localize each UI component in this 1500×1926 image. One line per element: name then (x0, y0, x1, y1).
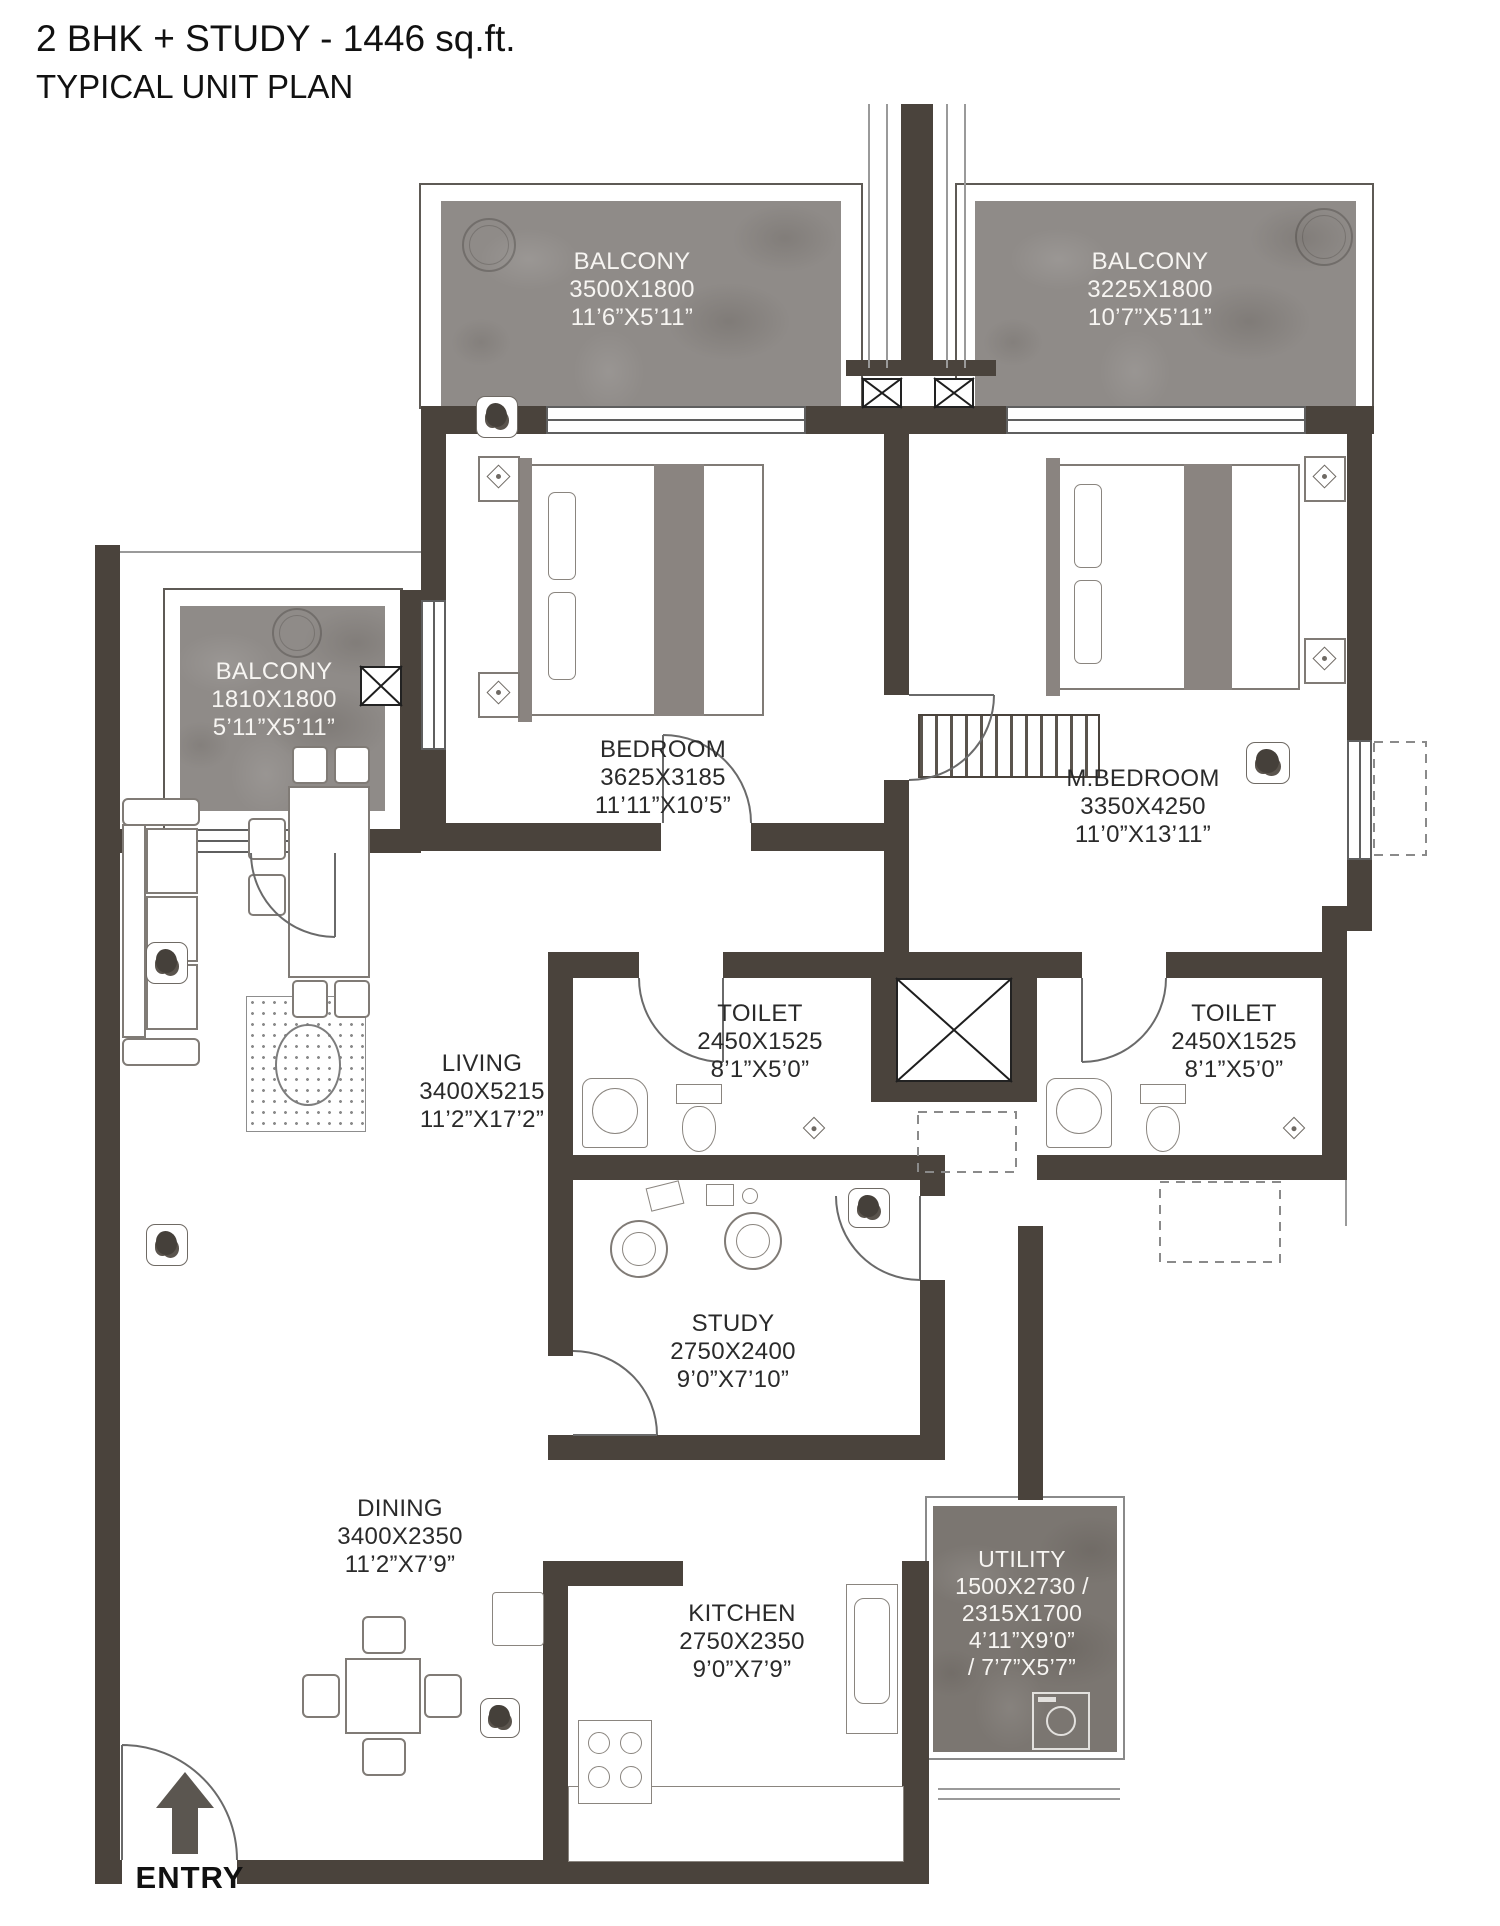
bed-runner (1184, 464, 1232, 690)
room-dims-ft: 10’7”X5’11” (1000, 304, 1300, 332)
plan-subtitle: TYPICAL UNIT PLAN (36, 68, 353, 106)
room-name: DINING (250, 1495, 550, 1523)
wall (901, 104, 933, 366)
label-bedroom: BEDROOM 3625X3185 11’11”X10’5” (513, 736, 813, 820)
room-dims-mm: 3350X4250 (993, 793, 1293, 821)
wall (1037, 1155, 1347, 1180)
wall (920, 1180, 945, 1196)
plan-title: 2 BHK + STUDY - 1446 sq.ft. (36, 18, 516, 60)
window (1006, 406, 1306, 434)
burner (620, 1732, 642, 1754)
entry-arrow-shaft (172, 1806, 198, 1854)
room-dims-ft: 11’11”X10’5” (513, 792, 813, 820)
sofa-cushion (146, 828, 198, 894)
wc-tank (1140, 1084, 1186, 1104)
beam-line (120, 551, 421, 553)
chair (334, 746, 370, 784)
plant-icon (848, 1188, 890, 1228)
study-chair-inner (622, 1232, 656, 1266)
chair (424, 1674, 462, 1718)
room-dims-mm: 1810X1800 (124, 686, 424, 714)
duct-box (862, 378, 902, 408)
planter-icon (1295, 208, 1353, 266)
bed-headboard (1046, 458, 1060, 696)
room-name: M.BEDROOM (993, 765, 1293, 793)
room-dims-ft: 11’2”X7’9” (250, 1551, 550, 1579)
wc-tank (676, 1084, 722, 1104)
window (421, 600, 446, 750)
room-name: BALCONY (124, 658, 424, 686)
room-dims-mm: 3225X1800 (1000, 276, 1300, 304)
chair (292, 980, 328, 1018)
wall (871, 1082, 1037, 1102)
room-dims-ft: 9’0”X7’10” (583, 1366, 883, 1394)
burner (588, 1766, 610, 1788)
plant-icon (146, 942, 188, 984)
wall (896, 1155, 945, 1180)
room-dims-mm: 3500X1800 (482, 276, 782, 304)
room-dims-ft: 11’6”X5’11” (482, 304, 782, 332)
dining-table-6 (288, 786, 370, 978)
shaft-box (896, 978, 1012, 1082)
wall (548, 1435, 945, 1460)
room-name: BEDROOM (513, 736, 813, 764)
sofa-back (122, 824, 146, 1038)
wall (1018, 1226, 1043, 1500)
sofa-armrest (122, 798, 200, 826)
wall (543, 1561, 568, 1884)
bed-headboard (518, 458, 532, 722)
pillow (1074, 484, 1102, 568)
desk-item (646, 1180, 685, 1212)
wall (421, 434, 446, 600)
pillow (548, 592, 576, 680)
label-dining: DINING 3400X2350 11’2”X7’9” (250, 1495, 550, 1579)
pillow (548, 492, 576, 580)
wall (1322, 906, 1372, 931)
label-kitchen: KITCHEN 2750X2350 9’0”X7’9” (592, 1600, 892, 1684)
wall (1347, 860, 1372, 906)
label-balcony-left: BALCONY 1810X1800 5’11”X5’11” (124, 658, 424, 742)
room-dims-ft: 4’11”X9’0” (872, 1627, 1172, 1654)
room-dims-ft: 9’0”X7’9” (592, 1656, 892, 1684)
washing-machine-panel (1038, 1697, 1056, 1702)
room-dims-mm: 2750X2400 (583, 1338, 883, 1366)
chair (362, 1738, 406, 1776)
planter-icon (272, 608, 322, 658)
room-name: UTILITY (872, 1546, 1172, 1573)
room-dims-ft: 8’1”X5’0” (1084, 1056, 1384, 1084)
wall (723, 952, 1082, 978)
plant-icon (480, 1698, 520, 1738)
shaft-line (868, 104, 870, 368)
chair (334, 980, 370, 1018)
cabinet (492, 1592, 544, 1646)
room-dims-mm: 1500X2730 / (872, 1573, 1172, 1600)
edge-line (1345, 1180, 1347, 1226)
wall (1347, 406, 1372, 740)
stove (578, 1720, 652, 1804)
wall (1166, 952, 1347, 978)
room-dims-mm: 3400X5215 (332, 1078, 632, 1106)
rug-oval (275, 1024, 340, 1106)
shaft-line (964, 104, 966, 368)
room-dims-mm: 3625X3185 (513, 764, 813, 792)
chair (248, 818, 286, 860)
study-chair-inner (736, 1224, 770, 1258)
room-dims-ft: 5’11”X5’11” (124, 714, 424, 742)
chair (292, 746, 328, 784)
entry-label: ENTRY (110, 1860, 270, 1896)
room-name: LIVING (332, 1050, 632, 1078)
room-dims-ft: 8’1”X5’0” (610, 1056, 910, 1084)
wall (548, 1155, 896, 1180)
label-balcony-top-left: BALCONY 3500X1800 11’6”X5’11” (482, 248, 782, 332)
label-study: STUDY 2750X2400 9’0”X7’10” (583, 1310, 883, 1394)
entry-arrow-icon (156, 1772, 214, 1808)
room-dims-mm: 2450X1525 (610, 1028, 910, 1056)
washing-machine-door (1046, 1706, 1076, 1736)
sofa-armrest (122, 1038, 200, 1066)
label-balcony-top-right: BALCONY 3225X1800 10’7”X5’11” (1000, 248, 1300, 332)
wc-bowl (682, 1106, 716, 1152)
wall (237, 1860, 929, 1884)
wall (421, 823, 661, 851)
desk-item (706, 1184, 734, 1206)
wall (548, 952, 639, 978)
threshold-line (938, 1798, 1120, 1800)
room-name: BALCONY (1000, 248, 1300, 276)
window (546, 406, 806, 434)
burner (588, 1732, 610, 1754)
threshold-line (938, 1788, 1120, 1790)
wall (1012, 978, 1037, 1082)
label-living: LIVING 3400X5215 11’2”X17’2” (332, 1050, 632, 1134)
chair (248, 874, 286, 916)
label-master-bedroom: M.BEDROOM 3350X4250 11’0”X13’11” (993, 765, 1293, 849)
bed-runner (654, 464, 704, 716)
dining-table-4 (345, 1658, 421, 1734)
room-dims-ft: / 7’7”X5’7” (872, 1654, 1172, 1681)
wall (751, 823, 884, 851)
wall (920, 1280, 945, 1460)
room-name: TOILET (610, 1000, 910, 1028)
washbasin-bowl (1056, 1088, 1102, 1134)
plant-icon (146, 1224, 188, 1266)
room-name: TOILET (1084, 1000, 1384, 1028)
floor-plan: 2 BHK + STUDY - 1446 sq.ft. TYPICAL UNIT… (0, 0, 1500, 1926)
room-name: BALCONY (482, 248, 782, 276)
window (1347, 740, 1372, 860)
room-name: KITCHEN (592, 1600, 892, 1628)
wc-bowl (1146, 1106, 1180, 1152)
shaft-line (946, 104, 948, 368)
desk-item (742, 1188, 758, 1204)
pillow (1074, 580, 1102, 664)
room-dims-mm: 2315X1700 (872, 1600, 1172, 1627)
floor-drain-icon (1283, 1117, 1306, 1140)
room-dims-mm: 2750X2350 (592, 1628, 892, 1656)
wall (884, 780, 909, 952)
burner (620, 1766, 642, 1788)
floor-drain-icon (803, 1117, 826, 1140)
wall (884, 434, 909, 695)
chair (362, 1616, 406, 1654)
wall (806, 406, 1006, 434)
shaft-line (886, 104, 888, 368)
room-dims-mm: 2450X1525 (1084, 1028, 1384, 1056)
wall (95, 545, 120, 1884)
plant-icon (476, 396, 518, 438)
room-name: STUDY (583, 1310, 883, 1338)
label-toilet-left: TOILET 2450X1525 8’1”X5’0” (610, 1000, 910, 1084)
label-toilet-right: TOILET 2450X1525 8’1”X5’0” (1084, 1000, 1384, 1084)
duct-box (934, 378, 974, 408)
room-dims-ft: 11’2”X17’2” (332, 1106, 632, 1134)
room-dims-mm: 3400X2350 (250, 1523, 550, 1551)
chair (302, 1674, 340, 1718)
label-utility: UTILITY 1500X2730 / 2315X1700 4’11”X9’0”… (872, 1546, 1172, 1681)
room-dims-ft: 11’0”X13’11” (993, 821, 1293, 849)
